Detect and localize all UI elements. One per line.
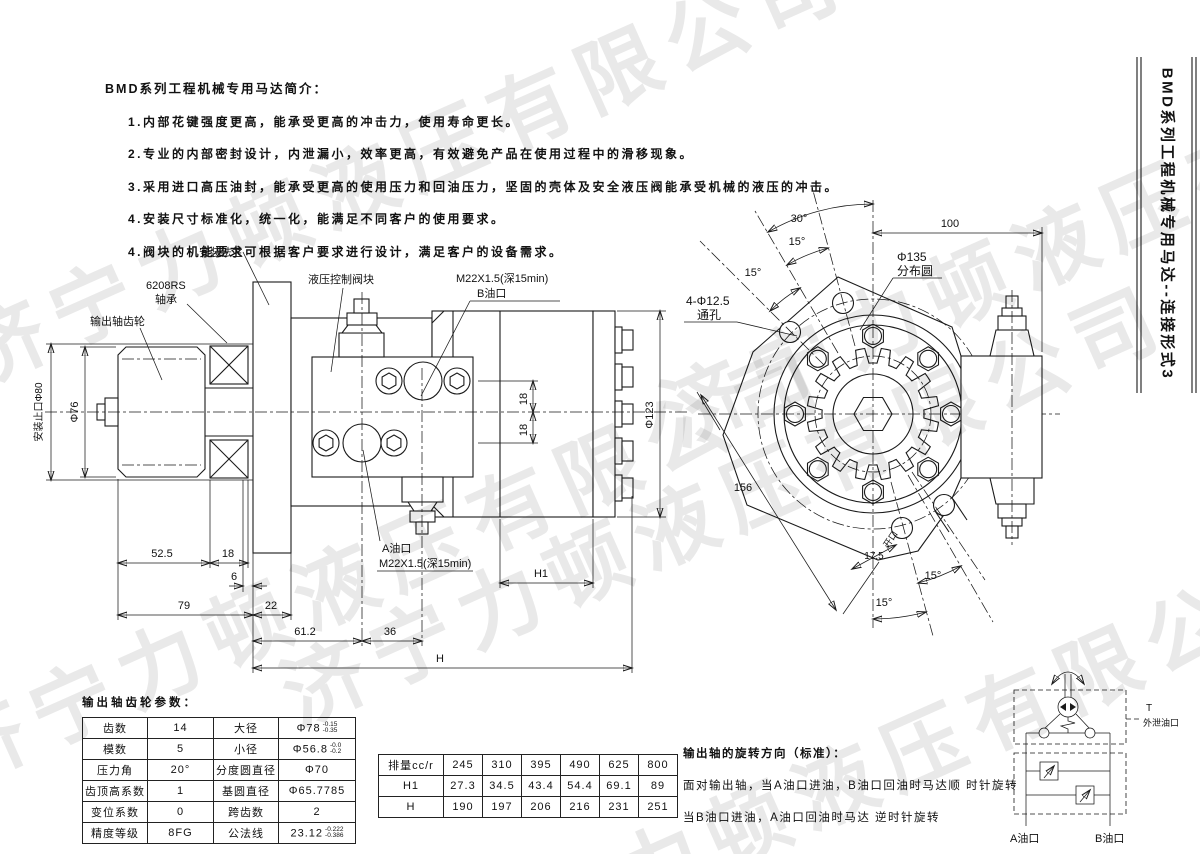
table-cell: Φ56.8-0.0-0.2	[279, 739, 356, 760]
drawing-sheet: BMD系列工程机械专用马达简介： 1.内部花键强度更高，能承受更高的冲击力，使用…	[0, 0, 1200, 854]
label-schematic-port-b: B油口	[1095, 831, 1124, 845]
label-through-holes: 通孔	[697, 308, 721, 322]
dim-156: 156	[734, 482, 752, 494]
dim-15deg: 15°	[925, 570, 942, 582]
table-cell: Φ70	[279, 760, 356, 781]
table-row: 模数5小径Φ56.8-0.0-0.2	[83, 739, 356, 760]
table-cell: 跨齿数	[214, 802, 279, 823]
dim-52-5: 52.5	[151, 548, 172, 560]
table: 排量cc/r245310395490625800H127.334.543.454…	[378, 754, 678, 818]
label-dia76: Φ76	[69, 401, 81, 422]
table-cell: 小径	[214, 739, 279, 760]
table-row: H127.334.543.454.469.189	[379, 776, 678, 797]
sheet-title: BMD系列工程机械专用马达--连接形式3	[1158, 68, 1179, 381]
hydraulic-schematic: T 外泄油口 A油口 B油口	[1010, 672, 1179, 845]
table-cell: 大径	[214, 718, 279, 739]
table-cell: 20°	[148, 760, 214, 781]
table-cell: 197	[483, 797, 522, 818]
side-view: 安装法兰 6208RS 轴承 输出轴齿轮 液压控制阀块 M22X1.5(深15m…	[32, 245, 688, 673]
schematic-symbols	[1039, 697, 1095, 804]
table-cell: 2	[279, 802, 356, 823]
dim-H: H	[436, 653, 444, 665]
intro-bullet: 4.安装尺寸标准化，统一化，能满足不同客户的使用要求。	[128, 210, 839, 227]
label-bearing: 轴承	[155, 292, 177, 306]
table-row: 齿数14大径Φ78-0.15-0.35	[83, 718, 356, 739]
table-cell: Φ78-0.15-0.35	[279, 718, 356, 739]
table-cell: 251	[639, 797, 678, 818]
rotation-line: 当B油口进油，A油口回油时马达 逆时针旋转	[683, 809, 1018, 825]
table-cell: Φ65.7785	[279, 781, 356, 802]
table-row: 变位系数0跨齿数2	[83, 802, 356, 823]
label-valve-block: 液压控制阀块	[308, 272, 374, 286]
table-cell: 齿数	[83, 718, 148, 739]
table-cell: 齿顶高系数	[83, 781, 148, 802]
intro-bullet: 2.专业的内部密封设计，内泄漏小，效率更高，有效避免产品在使用过程中的滑移现象。	[128, 145, 839, 162]
dim-36: 36	[384, 626, 396, 638]
intro-bullet: 3.采用进口高压油封，能承受更高的使用压力和回油压力，坚固的壳体及安全液压阀能承…	[128, 178, 839, 195]
table-cell: 公法线	[214, 823, 279, 844]
table-cell: 395	[522, 755, 561, 776]
table-cell: 排量cc/r	[379, 755, 444, 776]
table-cell: 216	[561, 797, 600, 818]
table-cell: 1	[148, 781, 214, 802]
table-cell: 23.12-0.222-0.386	[279, 823, 356, 844]
table-cell: 5	[148, 739, 214, 760]
table-cell: H	[379, 797, 444, 818]
rotation-line: 面对输出轴，当A油口进油，B油口回油时马达顺 时针旋转	[683, 777, 1018, 793]
label-bolt-circle: 分布圆	[897, 264, 933, 278]
dim-79: 79	[178, 600, 190, 612]
table-cell: 模数	[83, 739, 148, 760]
label-drain-port: 外泄油口	[1143, 717, 1179, 728]
label-dia123: Φ123	[644, 401, 656, 428]
dim-18: 18	[518, 424, 530, 436]
cover-bolts	[615, 327, 633, 501]
table-cell: 69.1	[600, 776, 639, 797]
table-row: 压力角20°分度圆直径Φ70	[83, 760, 356, 781]
dim-22: 22	[265, 600, 277, 612]
dim-17-5: 17.5	[864, 551, 884, 562]
intro-bullet: 1.内部花键强度更高，能承受更高的冲击力，使用寿命更长。	[128, 113, 839, 130]
label-bolt-circle-dia: Φ135	[897, 250, 927, 264]
table-cell: 800	[639, 755, 678, 776]
table-row: H190197206216231251	[379, 797, 678, 818]
table-cell: 310	[483, 755, 522, 776]
table-cell: 206	[522, 797, 561, 818]
table-row: 精度等级8FG公法线23.12-0.222-0.386	[83, 823, 356, 844]
valve-block-profile	[961, 296, 1042, 538]
gear-parameters-block: 输出轴齿轮参数： 齿数14大径Φ78-0.15-0.35模数5小径Φ56.8-0…	[82, 694, 356, 844]
table-row: 排量cc/r245310395490625800	[379, 755, 678, 776]
sheet-title-strip: BMD系列工程机械专用马达--连接形式3	[1148, 52, 1188, 397]
table-cell: 34.5	[483, 776, 522, 797]
table-cell: 490	[561, 755, 600, 776]
table-cell: 0	[148, 802, 214, 823]
gear-parameters-table: 齿数14大径Φ78-0.15-0.35模数5小径Φ56.8-0.0-0.2压力角…	[82, 717, 356, 844]
table-cell: 27.3	[444, 776, 483, 797]
gear-table-title: 输出轴齿轮参数：	[82, 694, 356, 710]
label-t-port: T	[1146, 703, 1152, 714]
table-cell: 231	[600, 797, 639, 818]
label-holes: 4-Φ12.5	[686, 294, 730, 308]
table-cell: H1	[379, 776, 444, 797]
table-cell: 190	[444, 797, 483, 818]
table-cell: 变位系数	[83, 802, 148, 823]
dim-100: 100	[941, 218, 959, 230]
table-cell: 14	[148, 718, 214, 739]
table-cell: 8FG	[148, 823, 214, 844]
table-cell: 精度等级	[83, 823, 148, 844]
table-cell: 压力角	[83, 760, 148, 781]
dim-18: 18	[222, 548, 234, 560]
table-cell: 分度圆直径	[214, 760, 279, 781]
rotation-title: 输出轴的旋转方向（标准）：	[683, 745, 1018, 761]
table-cell: 89	[639, 776, 678, 797]
dim-6: 6	[231, 571, 237, 583]
dim-15deg: 15°	[876, 597, 893, 609]
table-cell: 625	[600, 755, 639, 776]
dim-18: 18	[518, 393, 530, 405]
intro-block: BMD系列工程机械专用马达简介： 1.内部花键强度更高，能承受更高的冲击力，使用…	[105, 78, 839, 260]
label-port-a-thread: M22X1.5(深15min)	[379, 557, 471, 570]
label-output-shaft-gear: 输出轴齿轮	[90, 314, 145, 328]
rotation-note: 输出轴的旋转方向（标准）： 面对输出轴，当A油口进油，B油口回油时马达顺 时针旋…	[683, 745, 1018, 841]
intro-bullet: 4.阀块的机能要求可根据客户要求进行设计，满足客户的设备需求。	[128, 243, 839, 260]
label-port-a: A油口	[382, 541, 411, 555]
table-cell: 54.4	[561, 776, 600, 797]
table-cell: 245	[444, 755, 483, 776]
label-bearing-model: 6208RS	[146, 280, 186, 292]
dim-61-2: 61.2	[294, 626, 315, 638]
table: 齿数14大径Φ78-0.15-0.35模数5小径Φ56.8-0.0-0.2压力角…	[82, 717, 356, 844]
dim-H1: H1	[534, 568, 548, 580]
label-port-b-thread: M22X1.5(深15min)	[456, 272, 548, 285]
dim-15deg: 15°	[745, 267, 762, 279]
table-cell: 43.4	[522, 776, 561, 797]
displacement-table: 排量cc/r245310395490625800H127.334.543.454…	[378, 754, 678, 818]
intro-title: BMD系列工程机械专用马达简介：	[105, 78, 839, 97]
label-port-b: B油口	[477, 286, 506, 300]
table-cell: 基圆直径	[214, 781, 279, 802]
label-spigot: 安装止口Φ80	[32, 382, 45, 442]
table-row: 齿顶高系数1基圆直径Φ65.7785	[83, 781, 356, 802]
